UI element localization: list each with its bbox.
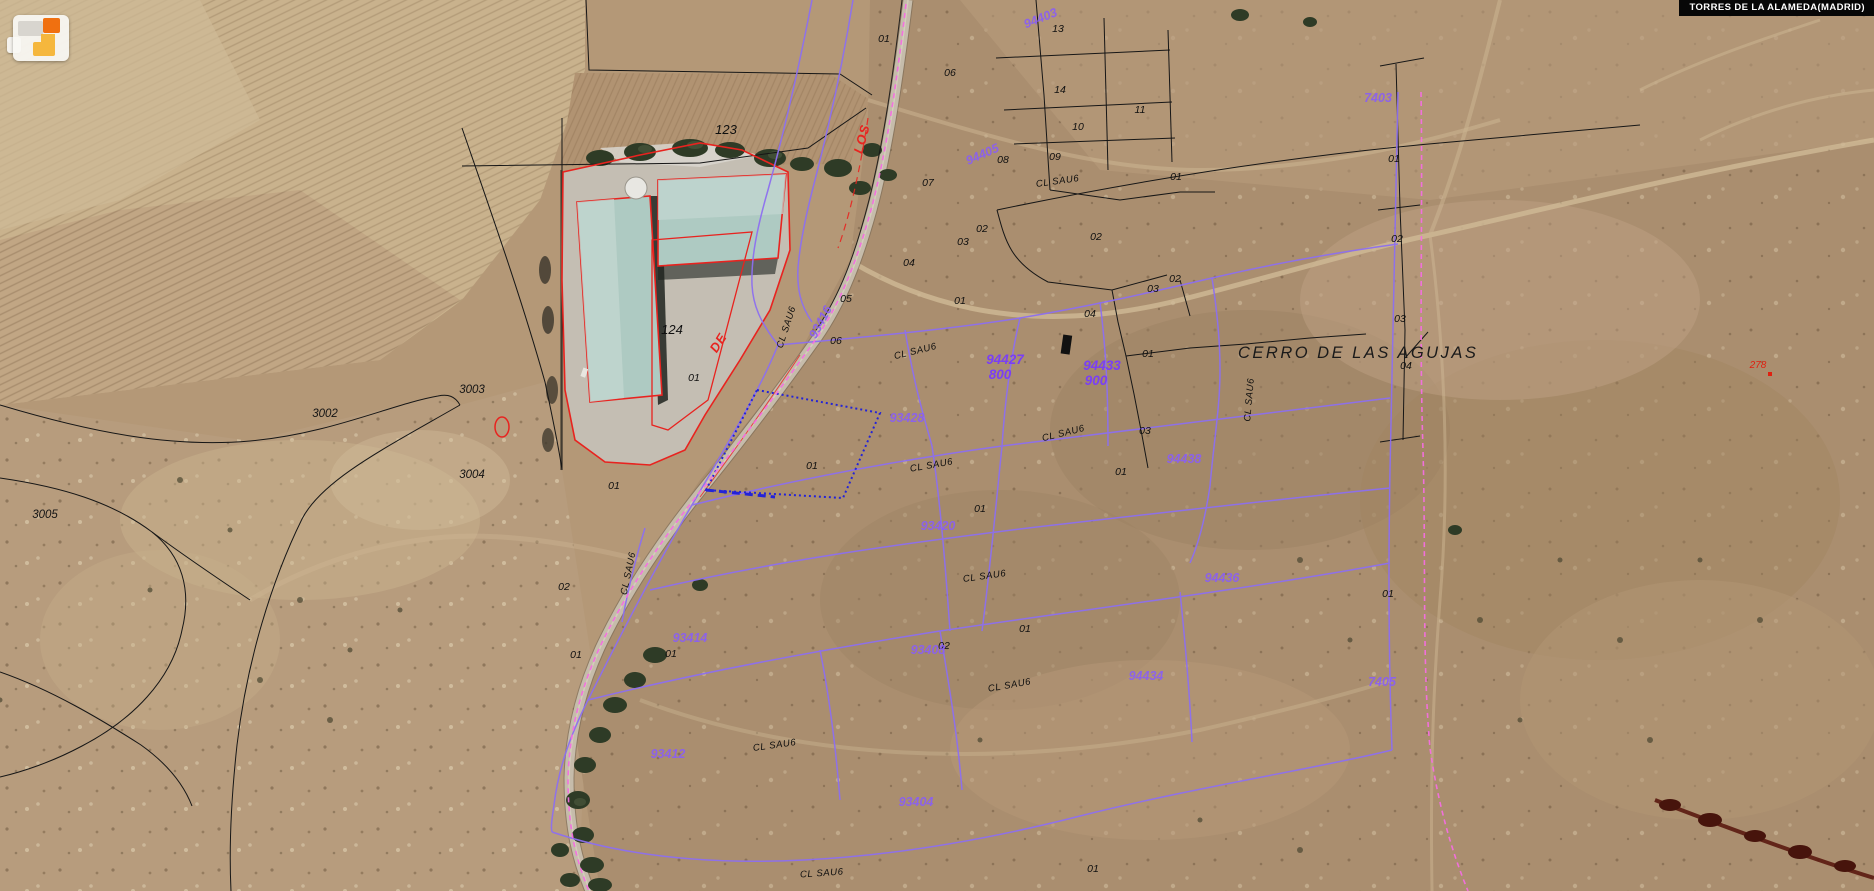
parcel-number: 01 bbox=[1382, 588, 1394, 600]
parcel-number: 01 bbox=[1087, 863, 1099, 875]
sector-code: 93420 bbox=[921, 519, 956, 533]
parcel-number: 01 bbox=[1019, 623, 1031, 635]
municipality-bar: TORRES DE LA ALAMEDA(MADRID) bbox=[1679, 0, 1874, 16]
parcel-number: 01 bbox=[1388, 153, 1400, 165]
parcel-number: 03 bbox=[1139, 425, 1151, 437]
logo-gray-square-icon bbox=[18, 21, 43, 36]
parcel-number: 01 bbox=[878, 33, 890, 45]
red-parcel-number: 278 bbox=[1749, 360, 1767, 371]
parcel-number: 01 bbox=[688, 372, 700, 384]
parcel-number: 09 bbox=[1049, 151, 1061, 163]
sector-code: 94434 bbox=[1129, 669, 1164, 683]
sector-code: 93408 bbox=[911, 643, 946, 657]
parcel-number: 03 bbox=[1394, 313, 1406, 325]
app-logo-button[interactable] bbox=[13, 15, 69, 61]
parcel-number: 03 bbox=[1147, 283, 1159, 295]
finca-code: 94427 bbox=[986, 352, 1025, 367]
sector-code: 7405 bbox=[1368, 675, 1397, 689]
finca-code: 900 bbox=[1085, 373, 1108, 388]
parcel-number: 02 bbox=[1090, 231, 1102, 243]
finca-code: 800 bbox=[989, 367, 1012, 382]
parcel-number: 04 bbox=[903, 257, 915, 269]
rustic-parcel-number: 3002 bbox=[312, 408, 338, 420]
sector-code: 94436 bbox=[1205, 571, 1241, 585]
parcel-number: 11 bbox=[1135, 104, 1146, 116]
parcel-number: 01 bbox=[806, 460, 818, 472]
red-dot bbox=[1768, 372, 1772, 376]
map-viewport[interactable]: CERRO DE LAS AGUJAS123124300230033004300… bbox=[0, 0, 1874, 891]
parcel-number: 02 bbox=[1391, 233, 1403, 245]
parcel-number: 10 bbox=[1072, 121, 1084, 133]
finca-code: 94433 bbox=[1083, 358, 1121, 373]
sector-code: 93404 bbox=[899, 795, 934, 809]
place-name: CERRO DE LAS AGUJAS bbox=[1238, 344, 1478, 362]
sector-code: 93412 bbox=[651, 747, 686, 761]
parcel-number: 01 bbox=[1142, 348, 1154, 360]
parcel-number: 01 bbox=[608, 480, 620, 492]
parcel-number: 01 bbox=[1115, 466, 1127, 478]
parcel-number: 01 bbox=[974, 503, 986, 515]
parcel-number: 02 bbox=[558, 581, 570, 593]
logo-yellow-square-icon bbox=[33, 42, 55, 56]
parcel-number: 13 bbox=[1052, 23, 1064, 35]
parcel-number: 02 bbox=[1169, 273, 1181, 285]
rustic-parcel-number: 3004 bbox=[459, 469, 485, 481]
silo bbox=[625, 177, 647, 199]
parcel-number: 03 bbox=[957, 236, 969, 248]
aerial-cadastral-map[interactable]: CERRO DE LAS AGUJAS123124300230033004300… bbox=[0, 0, 1874, 891]
logo-orange-square-icon bbox=[43, 18, 60, 33]
sector-code: 93428 bbox=[890, 411, 925, 425]
parcel-number: 02 bbox=[976, 223, 988, 235]
parcel-number: 04 bbox=[1084, 308, 1096, 320]
parcel-number: 123 bbox=[715, 122, 737, 137]
parcel-number: 01 bbox=[665, 648, 677, 660]
parcel-number: 05 bbox=[840, 293, 852, 305]
parcel-number: 06 bbox=[830, 335, 842, 347]
parcel-number: 06 bbox=[944, 67, 956, 79]
sector-code: 7403 bbox=[1364, 91, 1392, 105]
parcel-number: 04 bbox=[1400, 360, 1412, 372]
parcel-number: 01 bbox=[1170, 171, 1182, 183]
sector-code: 94438 bbox=[1167, 452, 1202, 466]
rustic-parcel-number: 3003 bbox=[459, 384, 485, 396]
sector-code: 93414 bbox=[673, 631, 708, 645]
parcel-number: 01 bbox=[954, 295, 966, 307]
terrain-layer bbox=[0, 0, 1874, 891]
parcel-number: 08 bbox=[997, 154, 1009, 166]
parcel-number: 01 bbox=[570, 649, 582, 661]
parcel-number: 07 bbox=[922, 177, 935, 189]
municipality-label: TORRES DE LA ALAMEDA(MADRID) bbox=[1689, 2, 1865, 13]
parcel-number: 14 bbox=[1054, 84, 1066, 96]
rustic-parcel-number: 3005 bbox=[32, 509, 58, 521]
parcel-number: 124 bbox=[661, 322, 683, 337]
